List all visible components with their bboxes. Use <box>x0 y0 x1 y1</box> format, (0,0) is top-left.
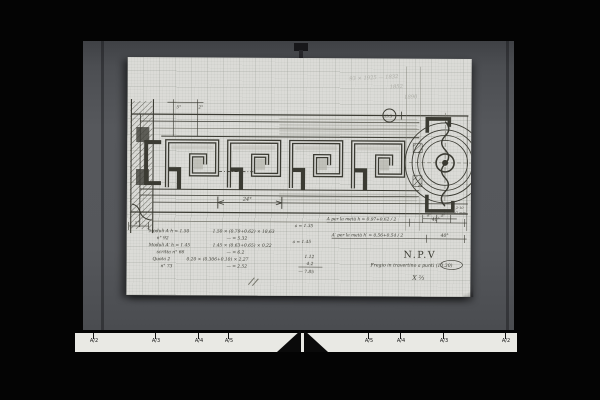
scale-tick: A/2 <box>505 333 506 339</box>
calc-sum-1: 1.12 <box>304 255 314 260</box>
scribble-line-2: 1852 <box>390 84 403 91</box>
scale-label: A/2 <box>499 338 513 344</box>
calc-row-1-left: n° 92 <box>157 236 169 241</box>
drawing-sheet: 93 × 1925 — 1832 1852 1890 <box>126 57 471 297</box>
scale-label: A/4 <box>394 338 408 344</box>
pencil-shading-top <box>279 117 417 137</box>
wall-section-hatched <box>130 99 154 233</box>
detail-marker-value: 13.5 <box>384 114 393 119</box>
calc-row-1-right: — = 5.32 <box>227 237 248 242</box>
calculation-block: Moduli A h = 1.50 1.50 × (0.79+0.62) × 1… <box>147 229 322 286</box>
scale-label: A/3 <box>437 338 451 344</box>
circle-note-2: 5/2 mm <box>453 211 466 215</box>
calc-row-3-right: — = 6.2 <box>227 251 245 256</box>
pencil-scribbles: 93 × 1925 — 1832 1852 1890 <box>349 73 418 103</box>
dim-24-label: 24° <box>242 197 252 203</box>
calc-row-4-left: Quota 2 <box>152 257 170 262</box>
check-marks <box>248 278 258 286</box>
photograph-of-archival-drawing: { "ruler": { "labels": ["A/2","A/3","A/4… <box>0 0 600 400</box>
dim-40-bottom: 40° <box>440 233 449 239</box>
a-eq-top: a = 1.35 <box>295 224 314 229</box>
scale-label: A/2 <box>87 338 101 344</box>
scale-tick: A/3 <box>155 333 156 339</box>
calc-sum-2: 4.2 <box>305 262 313 267</box>
dim-2-label: 2° <box>197 104 203 109</box>
dim-5-label: 5° <box>176 104 181 109</box>
c4b-label: 4° <box>440 214 445 218</box>
scale-tick: A/5 <box>368 333 369 339</box>
dim-40-top: 40° <box>431 217 440 223</box>
drawing-signature: X ⅔ <box>411 275 424 282</box>
architectural-drawing: 93 × 1925 — 1832 1852 1890 <box>126 57 471 297</box>
paper-corner-curl <box>463 285 473 297</box>
mat-seam-right <box>506 41 509 330</box>
dimension-notes: A per la metà h = 0.97+0.62 / 2 40° a = … <box>293 216 467 246</box>
note-a-bottom: A′ per la metà h′ = 0.56+0.54 / 2 <box>331 233 404 238</box>
a-eq-bottom: a = 1.45 <box>293 240 312 245</box>
scribble-line-1: 93 × 1925 — 1832 <box>349 74 398 82</box>
calc-sum-total: — 7.85 <box>298 270 314 275</box>
scale-label: A/3 <box>149 338 163 344</box>
scale-tick: A/3 <box>443 333 444 339</box>
circle-base-dims: 4° 4° <box>423 214 457 223</box>
scale-tick: A/4 <box>198 333 199 339</box>
calc-row-0-right: 1.50 × (0.79+0.62) × 18,63 <box>213 229 275 234</box>
calc-row-3-left: scritta n° 66 <box>157 250 185 255</box>
mat-seam-left <box>101 41 104 330</box>
c4a-label: 4° <box>426 214 431 218</box>
calc-row-5-left: n° 73 <box>160 264 172 269</box>
pencil-shading-bottom <box>279 192 417 204</box>
drawing-title: N.P.V <box>403 250 436 261</box>
calc-row-0-left: Moduli A h = 1.50 <box>148 229 190 234</box>
scale-tick: A/2 <box>93 333 94 339</box>
scale-label: A/5 <box>362 338 376 344</box>
calc-row-5-right: — = 2.52 <box>226 265 247 270</box>
scale-label: A/5 <box>222 338 236 344</box>
left-dim-label: 5° <box>135 220 140 225</box>
note-a-top: A per la metà h = 0.97+0.62 / 2 <box>326 217 397 222</box>
scale-label: A/4 <box>192 338 206 344</box>
calc-row-2-left: Moduli A′ h = 1.45 <box>148 243 191 248</box>
title-block: N.P.V Fregio in travertino a punti (13.3… <box>369 249 462 282</box>
scale-tick: A/5 <box>228 333 229 339</box>
top-dimensions: 5° 2° <box>167 99 203 136</box>
circle-note-1: 5,2·10 <box>453 206 465 210</box>
calc-row-4-right: 0.20 × (0.306+0.10) × 2,27 <box>186 257 248 262</box>
calc-row-2-right: 1.45 × (0.63+0.65) × 0,22 <box>213 243 272 248</box>
scale-tick: A/4 <box>400 333 401 339</box>
